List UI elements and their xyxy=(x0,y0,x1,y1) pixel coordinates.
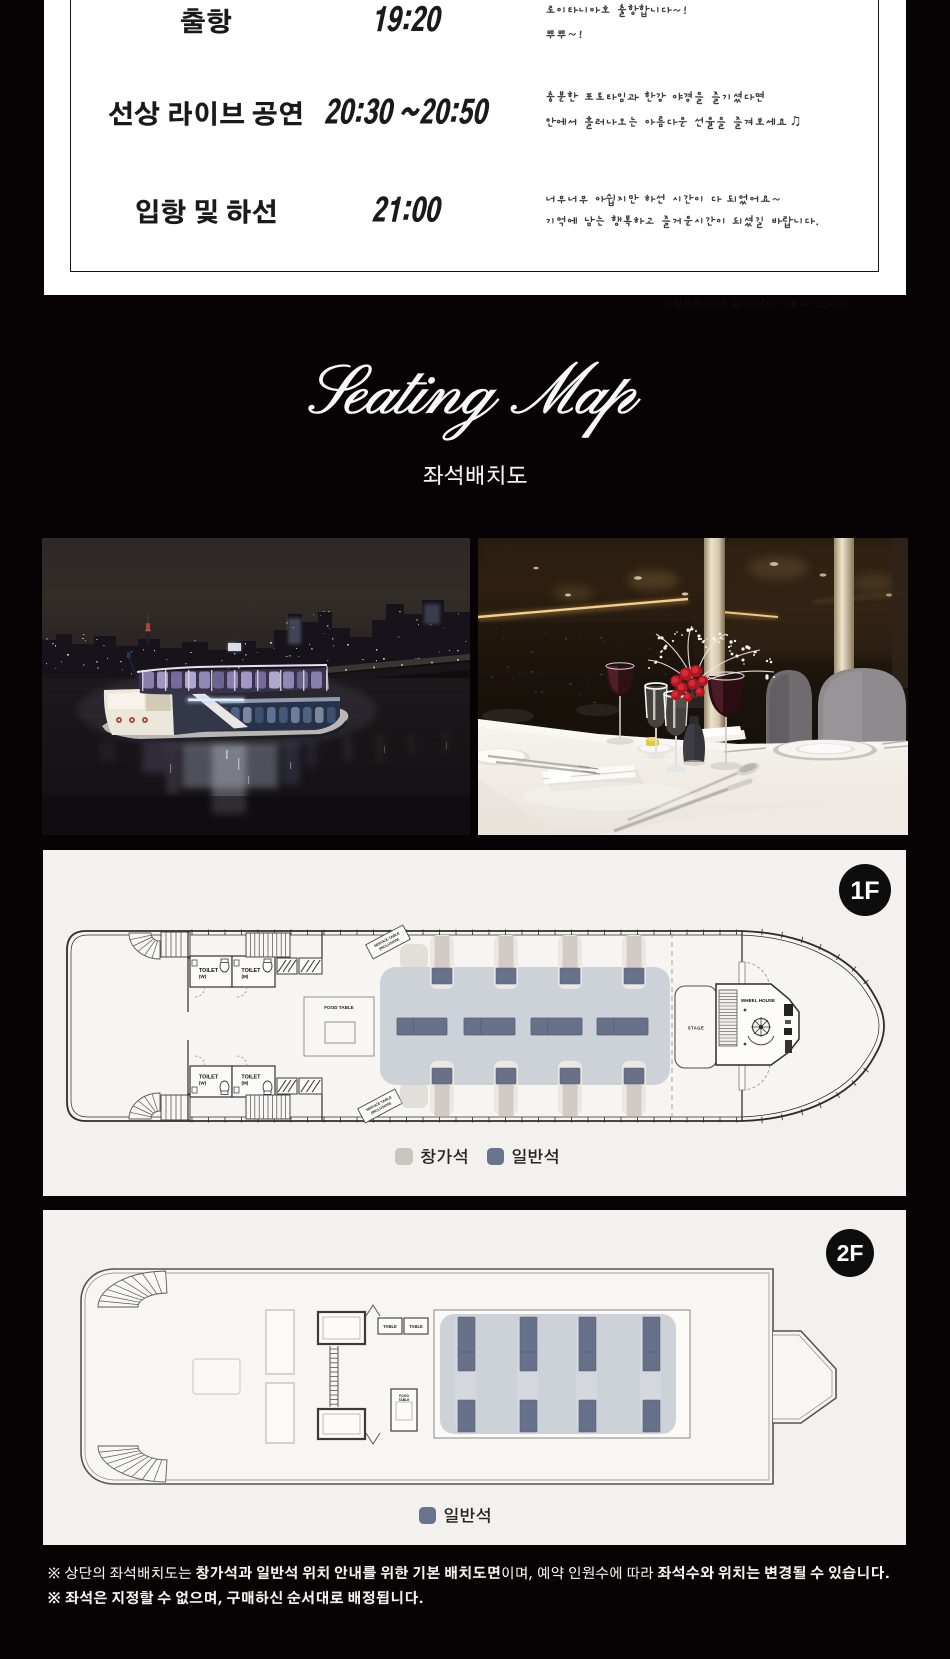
svg-text:1F: 1F xyxy=(850,877,879,905)
svg-text:TABLE: TABLE xyxy=(409,1324,423,1329)
svg-text:(W): (W) xyxy=(199,1080,207,1085)
svg-text:FOOD TABLE: FOOD TABLE xyxy=(324,1005,354,1010)
svg-text:WHEEL HOUSE: WHEEL HOUSE xyxy=(741,998,775,1003)
svg-text:2F: 2F xyxy=(837,1240,864,1266)
svg-text:(M): (M) xyxy=(241,974,248,979)
svg-text:(M): (M) xyxy=(241,1080,248,1085)
svg-text:STAGE: STAGE xyxy=(688,1026,705,1031)
svg-text:TABLE: TABLE xyxy=(398,1398,410,1402)
svg-text:(W): (W) xyxy=(199,974,207,979)
svg-text:TABLE: TABLE xyxy=(383,1324,397,1329)
